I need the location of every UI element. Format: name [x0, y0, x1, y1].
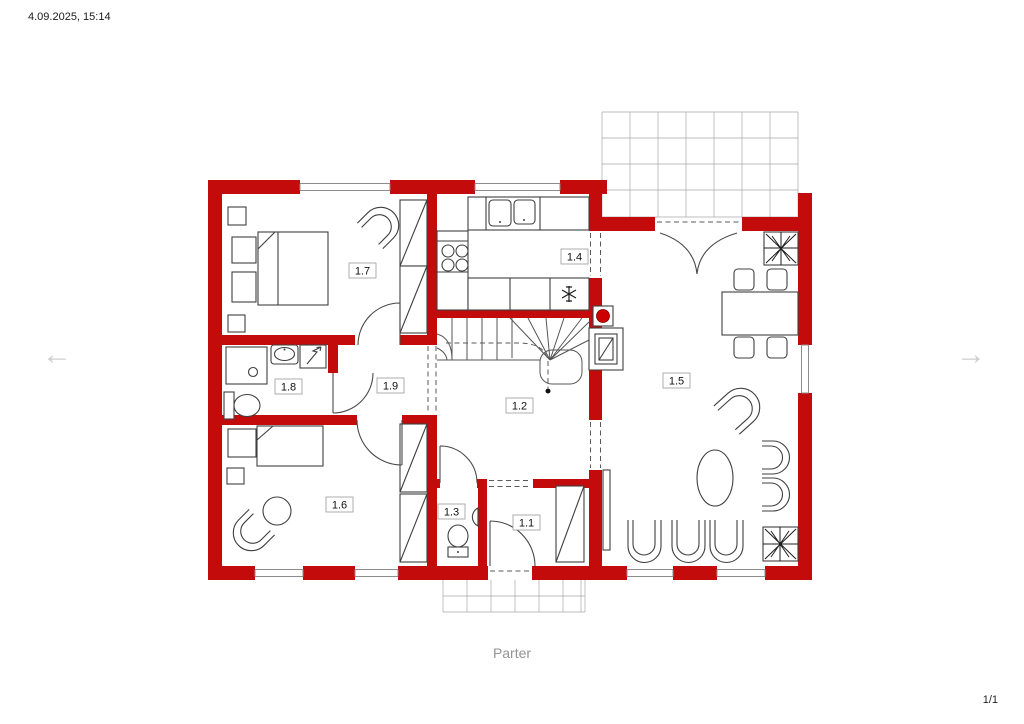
sofa-3seat — [628, 520, 743, 563]
bedroom-16-furniture — [226, 424, 427, 562]
single-bed — [228, 426, 323, 466]
dining-chair — [767, 337, 787, 358]
entry-11-furniture — [556, 486, 584, 562]
page-indicator: 1/1 — [983, 694, 998, 706]
plan-caption: Parter — [0, 645, 1024, 661]
room-label-1-6: 1.6 — [326, 497, 353, 512]
nightstand — [227, 468, 244, 484]
bedroom-17-furniture — [228, 200, 427, 333]
nightstand — [232, 237, 256, 263]
svg-text:1.6: 1.6 — [332, 500, 347, 512]
dining-table-set — [722, 269, 798, 358]
dining-chair — [734, 269, 754, 290]
svg-text:1.7: 1.7 — [355, 266, 370, 278]
room-label-1-7: 1.7 — [349, 263, 376, 278]
floor-plan: 1.1 1.2 1.3 1.4 1.5 1.6 1.7 1.8 1.9 — [0, 0, 1024, 724]
dining-chair — [734, 337, 754, 358]
door-arc — [333, 373, 373, 413]
terrace-grid — [602, 112, 798, 217]
wardrobe — [400, 424, 427, 562]
room-label-1-5: 1.5 — [663, 373, 690, 388]
sofa-2seat — [762, 441, 790, 511]
stool — [228, 315, 245, 332]
double-bed — [258, 232, 328, 305]
living-15-furniture — [628, 232, 798, 563]
svg-text:1.4: 1.4 — [567, 252, 582, 264]
armchair — [714, 380, 768, 434]
washbasin — [472, 508, 478, 526]
wardrobe — [400, 200, 427, 333]
room-label-1-1: 1.1 — [513, 515, 540, 530]
plant-icon — [763, 527, 798, 561]
wardrobe — [556, 486, 584, 562]
door-arc — [358, 303, 400, 345]
toilet — [448, 525, 468, 557]
svg-text:1.5: 1.5 — [669, 376, 684, 388]
radiator — [603, 470, 610, 550]
armchair — [357, 200, 406, 249]
svg-text:1.9: 1.9 — [383, 381, 398, 393]
fireplace — [589, 328, 623, 370]
room-label-1-2: 1.2 — [506, 398, 533, 413]
coffee-table — [697, 450, 733, 506]
chimney-flue — [593, 306, 613, 326]
door-arc — [357, 420, 402, 465]
terrace-double-door — [660, 233, 737, 274]
svg-text:1.1: 1.1 — [519, 518, 534, 530]
stool — [228, 207, 246, 225]
svg-text:1.2: 1.2 — [512, 401, 527, 413]
room-label-1-3: 1.3 — [438, 504, 465, 519]
dining-table — [722, 292, 798, 335]
toilet — [224, 392, 260, 419]
dining-chair — [767, 269, 787, 290]
plant-icon — [764, 232, 798, 265]
stairs — [437, 318, 589, 394]
washbasin — [271, 345, 298, 364]
room-label-1-8: 1.8 — [275, 379, 302, 394]
electrical-panel-icon — [300, 345, 326, 368]
entry-porch-grid — [443, 580, 585, 612]
svg-text:1.3: 1.3 — [444, 507, 459, 519]
side-table — [263, 497, 291, 525]
shower — [226, 347, 267, 384]
svg-text:1.8: 1.8 — [281, 382, 296, 394]
door-arc — [440, 446, 477, 483]
room-label-1-4: 1.4 — [561, 249, 588, 264]
nightstand — [232, 272, 256, 302]
room-label-1-9: 1.9 — [377, 378, 404, 393]
